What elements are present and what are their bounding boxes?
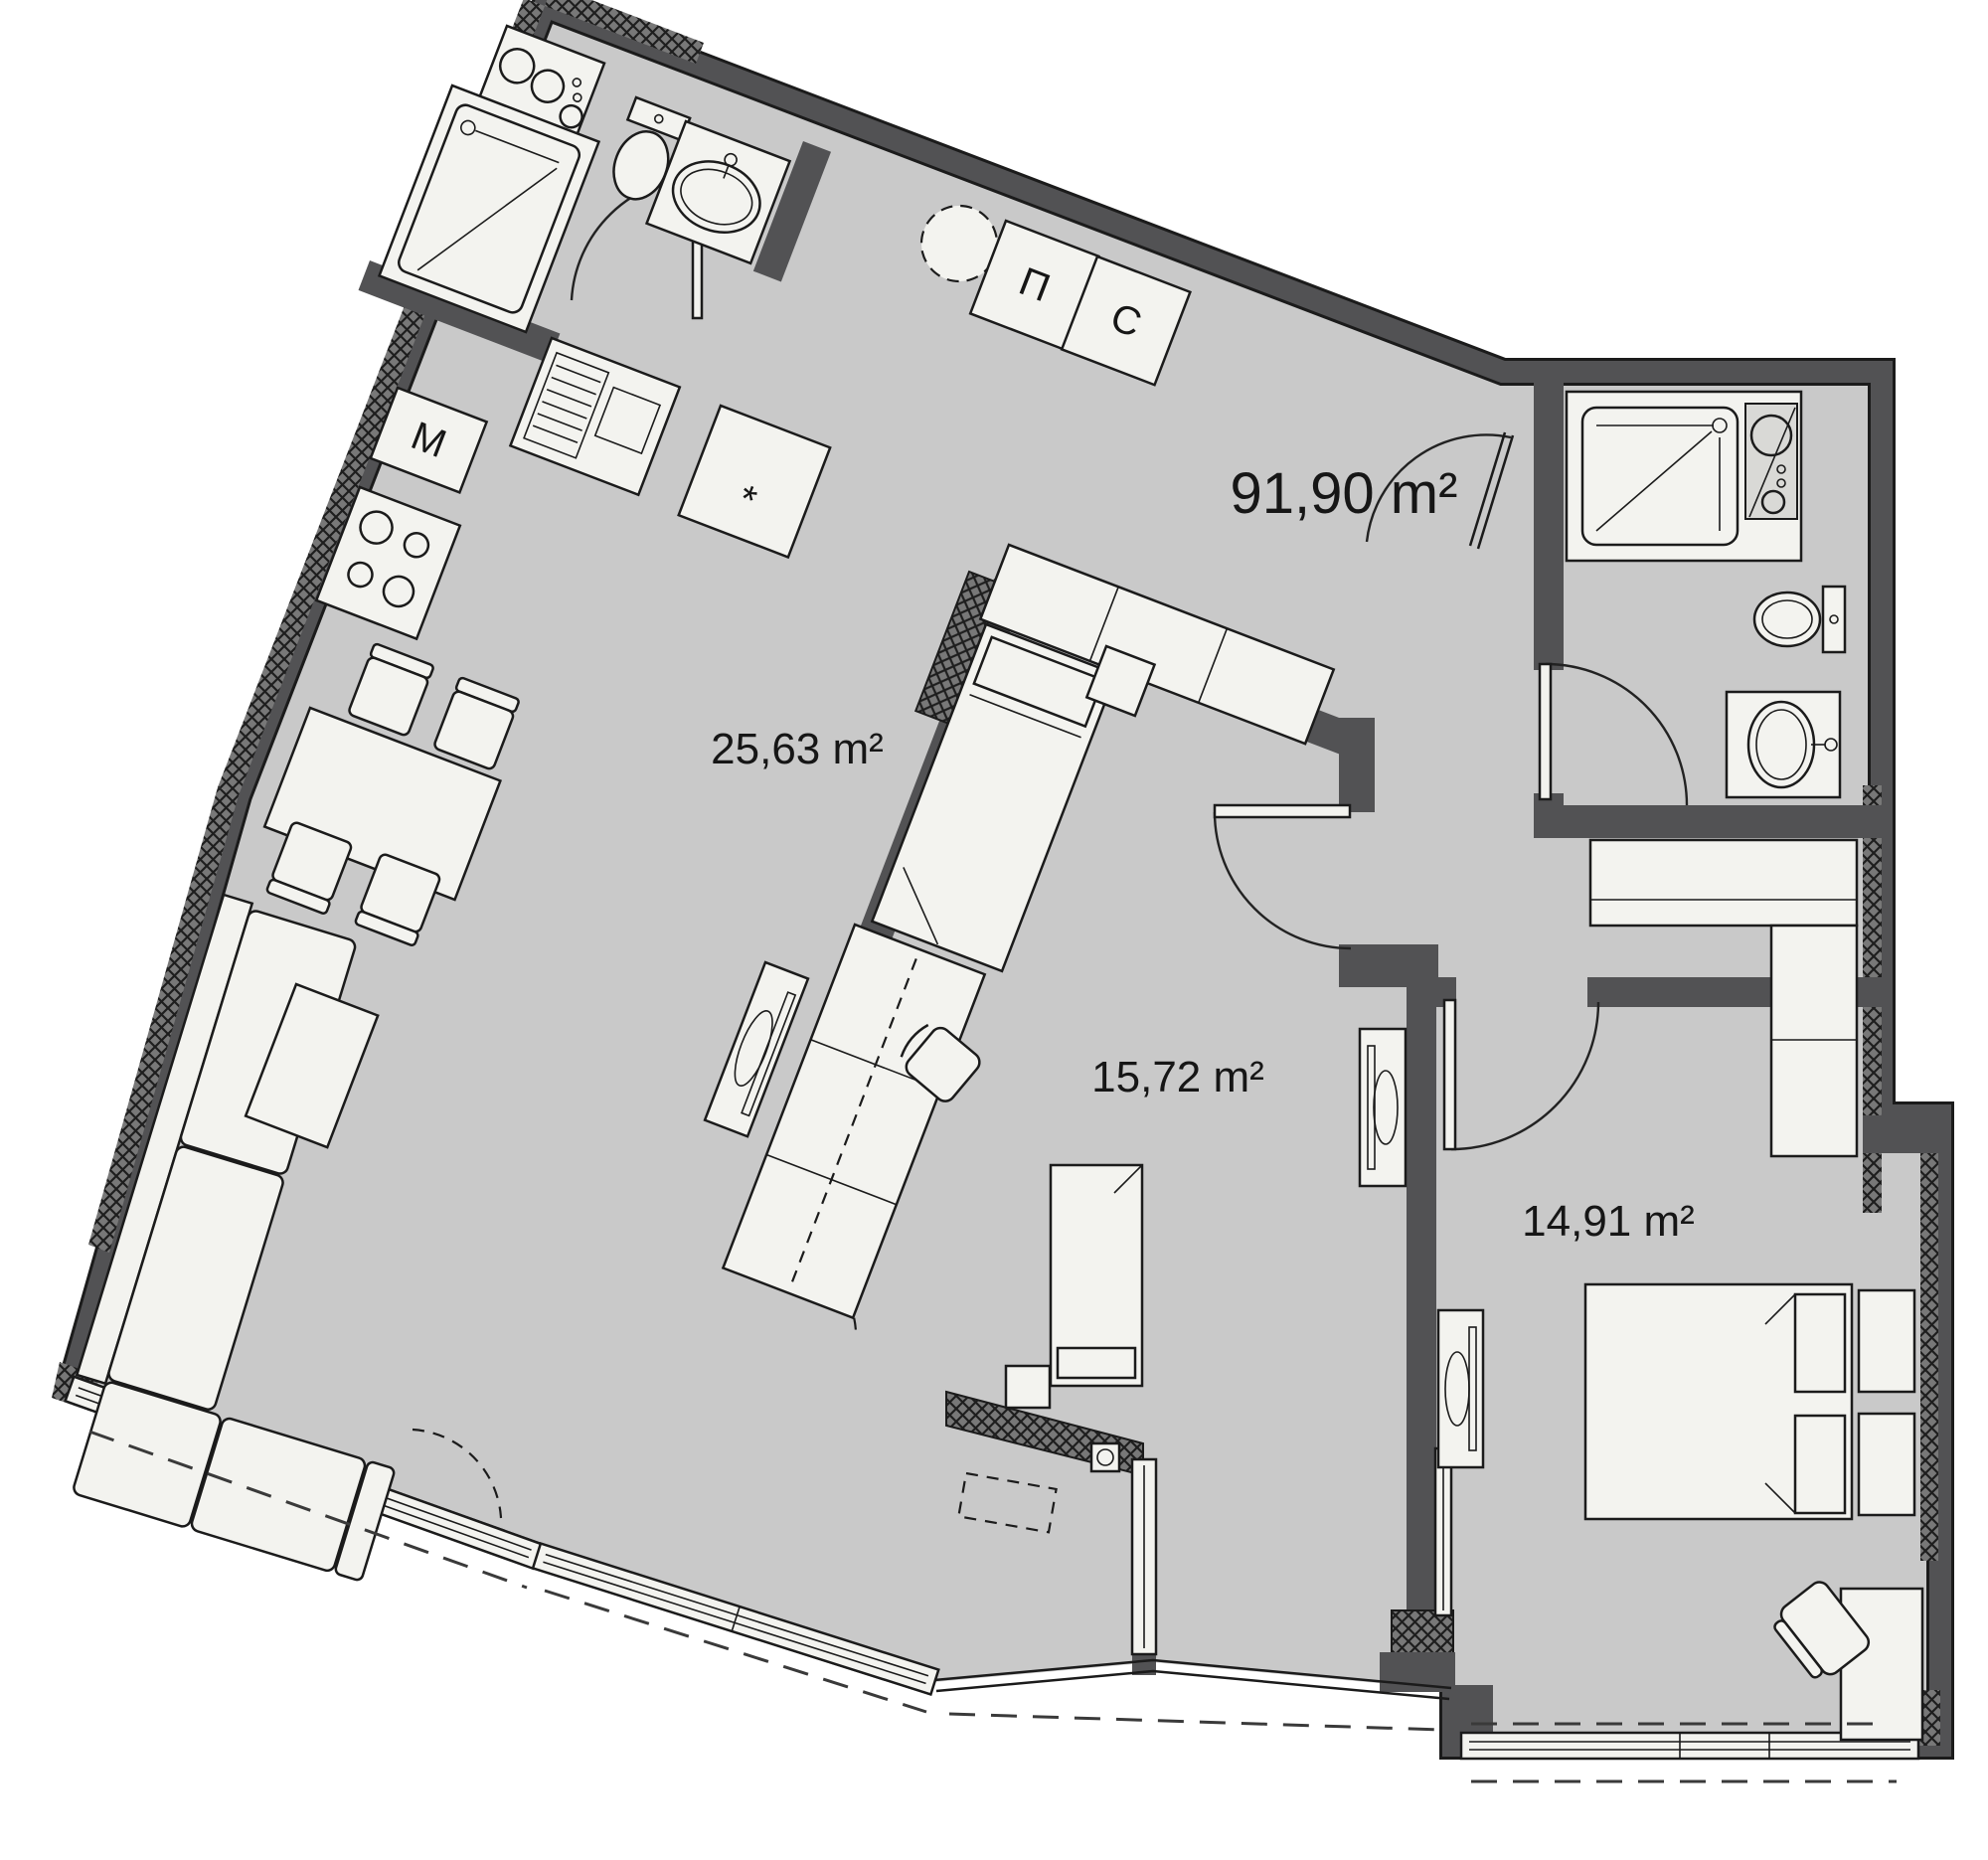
children-area-label: 15,72 m²	[1091, 1053, 1264, 1101]
master-wardrobe-top	[1590, 840, 1857, 926]
master-pillow-1	[1795, 1294, 1845, 1392]
master-desk	[1841, 1589, 1922, 1740]
floor-plan-page: М * П	[0, 0, 1988, 1860]
living-area-label: 25,63 m²	[711, 725, 884, 773]
master-nightstand-1	[1859, 1290, 1914, 1392]
window-master-balcony	[1435, 1448, 1451, 1615]
children-bed2-pillow	[1058, 1348, 1135, 1378]
tv-unit-children	[1360, 1029, 1406, 1186]
wall-bath2-bottom	[1534, 805, 1882, 838]
children-side-table	[1006, 1366, 1050, 1408]
boiler	[921, 206, 997, 281]
master-pillow-2	[1795, 1416, 1845, 1513]
bath2-vanity	[1727, 692, 1840, 797]
bath2-water-heater	[1745, 404, 1797, 519]
master-double-bed	[1585, 1284, 1852, 1519]
master-nightstand-2	[1859, 1414, 1914, 1515]
tv-unit-master	[1438, 1310, 1483, 1467]
master-area-label: 14,91 m²	[1522, 1197, 1695, 1246]
bath2-toilet	[1754, 587, 1845, 652]
wall-right-step	[1863, 1115, 1940, 1153]
children-bed-2	[1051, 1165, 1142, 1386]
wall-bath2-left	[1534, 372, 1564, 670]
hatch-right-lower	[1920, 1133, 1938, 1561]
wall-children-corner	[1339, 718, 1375, 812]
master-wardrobe-right	[1771, 926, 1857, 1156]
total-area-label: 91,90 m²	[1231, 461, 1458, 526]
wall-children-chunk	[1339, 944, 1438, 987]
wall-children-master	[1407, 984, 1436, 1625]
window-children-balcony	[1132, 1459, 1156, 1654]
floor-plan-drawing: М * П	[0, 0, 1988, 1860]
balcony-ac-unit	[1091, 1443, 1119, 1471]
